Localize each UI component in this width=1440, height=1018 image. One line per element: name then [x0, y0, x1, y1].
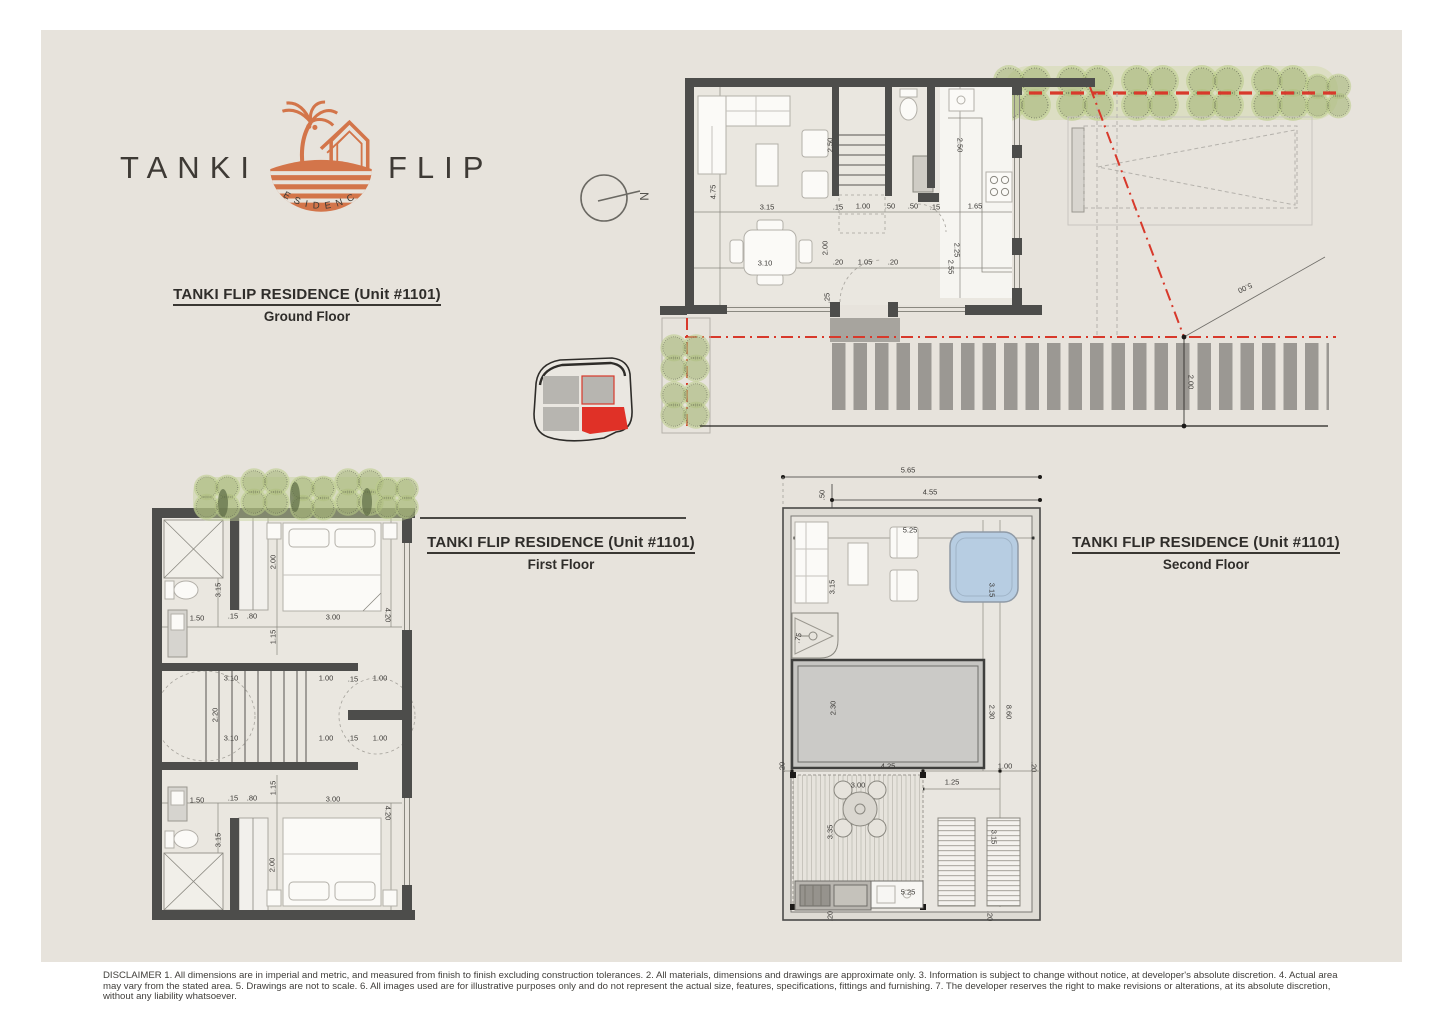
svg-text:N: N	[637, 192, 651, 201]
top-dimension-lines	[781, 475, 1042, 508]
title-line2: Ground Floor	[147, 309, 467, 324]
plot-outlined	[582, 376, 614, 404]
first-floor-title: TANKI FLIP RESIDENCE (Unit #1101) First …	[401, 534, 721, 572]
closet-lower	[239, 818, 268, 911]
ground-floor-plan	[660, 60, 1340, 440]
driveway	[1068, 93, 1312, 337]
site-key-map	[528, 352, 643, 444]
tree-row	[993, 65, 1351, 121]
page: TANKI FLIP	[0, 0, 1440, 1018]
bbq-counter	[795, 881, 923, 910]
planter	[660, 318, 710, 433]
outdoor-shower	[792, 613, 838, 658]
logo-emblem-icon: RESIDENCE	[256, 100, 386, 230]
second-floor-plan	[775, 460, 1050, 930]
sightline	[1090, 87, 1184, 337]
bed-lower	[267, 818, 397, 906]
title-line1: TANKI FLIP RESIDENCE (Unit #1101)	[1072, 534, 1340, 554]
palm-tree-icon	[282, 102, 337, 167]
plot	[543, 376, 579, 404]
paving-stripes	[832, 343, 1329, 410]
title-line1: TANKI FLIP RESIDENCE (Unit #1101)	[427, 534, 695, 554]
title-line1: TANKI FLIP RESIDENCE (Unit #1101)	[173, 286, 441, 306]
side-table	[848, 543, 868, 585]
logo-word-tanki: TANKI	[120, 150, 259, 186]
dim-5m-line	[1184, 257, 1325, 337]
toilet-fixture	[900, 89, 917, 120]
disclaimer-text: DISCLAIMER 1. All dimensions are in impe…	[103, 971, 1346, 1003]
second-floor-title: TANKI FLIP RESIDENCE (Unit #1101) Second…	[1046, 534, 1366, 572]
coconut-icon	[306, 124, 311, 129]
first-floor-plan	[145, 475, 430, 930]
terrace-sofa	[795, 522, 828, 603]
closet-upper	[239, 517, 268, 610]
logo-word-flip: FLIP	[388, 150, 493, 186]
entry-pad	[830, 318, 900, 342]
planter-greenery	[193, 468, 419, 521]
title-line2: Second Floor	[1046, 557, 1366, 572]
divider-line	[420, 517, 686, 519]
plot	[543, 407, 579, 431]
skylight	[792, 660, 984, 768]
north-arrow-icon: N	[578, 170, 648, 226]
title-line2: First Floor	[401, 557, 721, 572]
jacuzzi	[950, 532, 1018, 602]
coconut-icon	[312, 125, 317, 130]
ground-floor-title: TANKI FLIP RESIDENCE (Unit #1101) Ground…	[147, 286, 467, 324]
bed-upper	[267, 523, 397, 611]
